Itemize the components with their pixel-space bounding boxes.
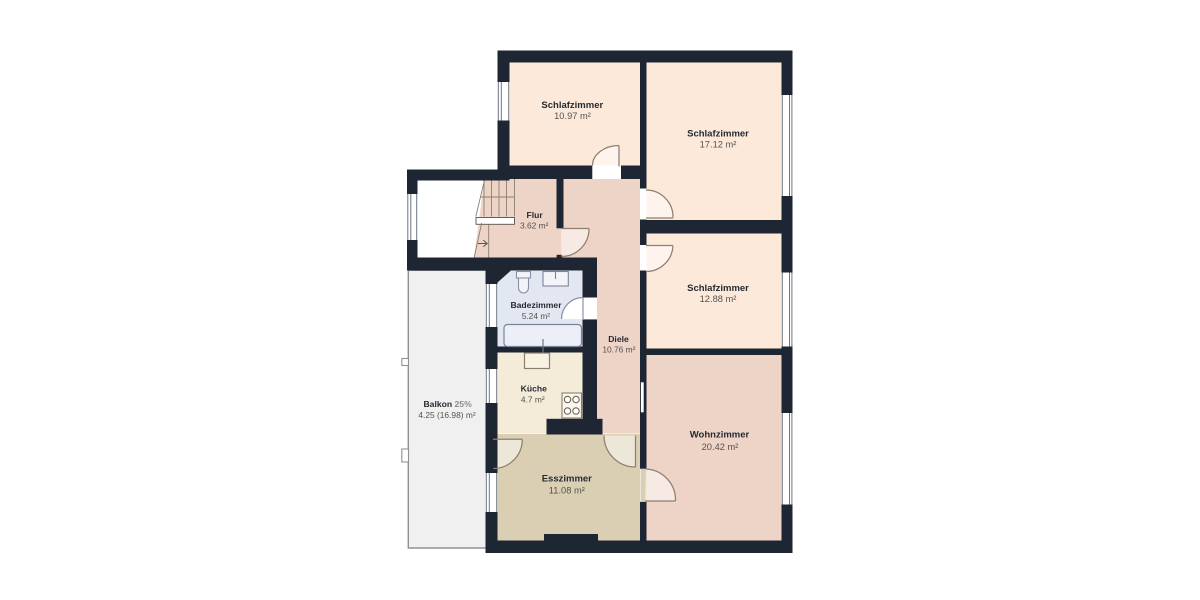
svg-text:Badezimmer: Badezimmer bbox=[510, 300, 562, 310]
svg-text:3.62 m²: 3.62 m² bbox=[520, 220, 549, 230]
svg-text:Küche: Küche bbox=[521, 384, 547, 394]
svg-text:Schlafzimmer: Schlafzimmer bbox=[687, 128, 749, 139]
svg-text:Balkon 25%: Balkon 25% bbox=[423, 399, 472, 409]
svg-text:4.7 m²: 4.7 m² bbox=[521, 395, 545, 405]
svg-text:10.76 m²: 10.76 m² bbox=[602, 345, 635, 355]
svg-text:Schlafzimmer: Schlafzimmer bbox=[541, 100, 603, 111]
svg-text:Diele: Diele bbox=[608, 334, 629, 344]
svg-text:10.97 m²: 10.97 m² bbox=[554, 111, 591, 121]
svg-text:5.24 m²: 5.24 m² bbox=[522, 311, 551, 321]
svg-text:Esszimmer: Esszimmer bbox=[542, 474, 592, 485]
svg-text:Wohnzimmer: Wohnzimmer bbox=[690, 430, 750, 441]
svg-text:Flur: Flur bbox=[526, 210, 543, 220]
svg-text:Schlafzimmer: Schlafzimmer bbox=[687, 283, 749, 294]
svg-text:17.12 m²: 17.12 m² bbox=[700, 139, 737, 149]
svg-text:20.42 m²: 20.42 m² bbox=[702, 442, 739, 452]
svg-text:12.88 m²: 12.88 m² bbox=[700, 294, 737, 304]
svg-text:11.08 m²: 11.08 m² bbox=[549, 485, 585, 495]
svg-text:4.25 (16.98) m²: 4.25 (16.98) m² bbox=[418, 410, 475, 420]
